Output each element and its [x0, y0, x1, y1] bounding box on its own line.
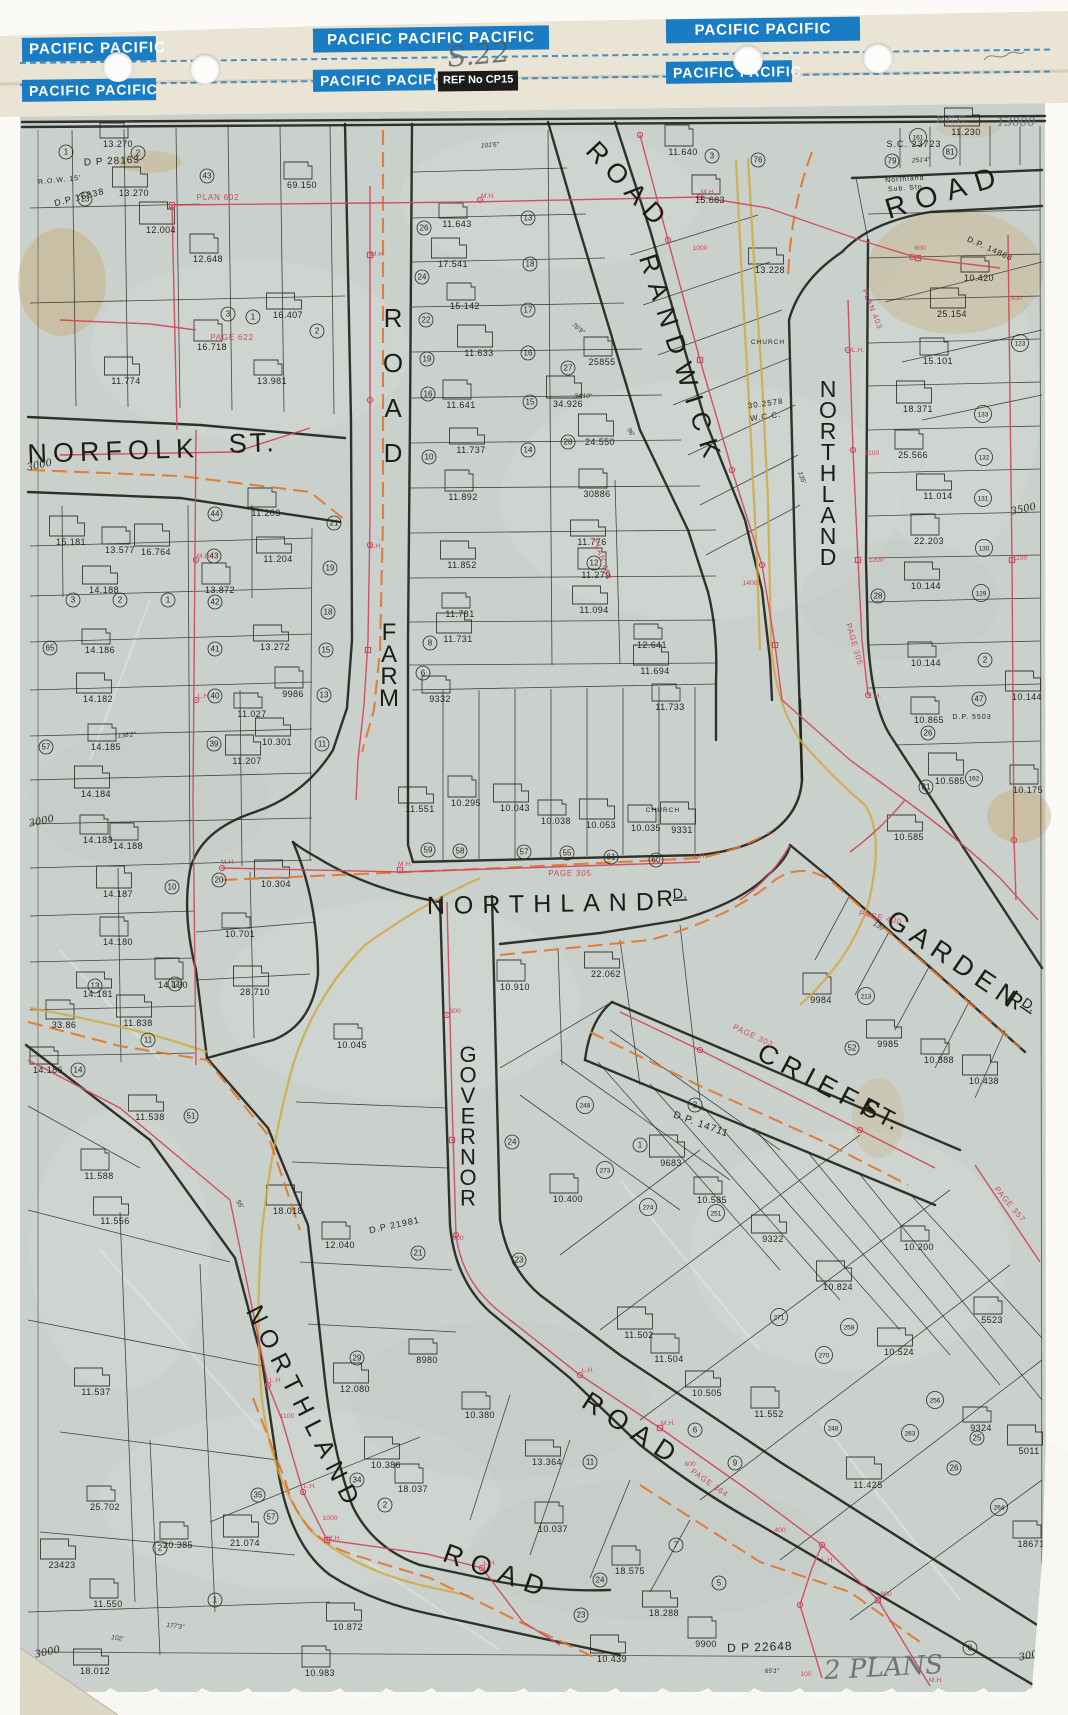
parcel-number: 11 — [144, 1036, 153, 1045]
lot-number: 13.364 — [532, 1457, 562, 1467]
survey-label: 1000 — [322, 1515, 337, 1522]
parcel-number: 1 — [213, 1596, 218, 1605]
lot-number: 24.550 — [585, 437, 615, 447]
lot-number: 25.702 — [90, 1502, 120, 1512]
lot-number: 10.400 — [553, 1194, 583, 1204]
parcel-number: 24 — [596, 1576, 605, 1585]
survey-label: L.H. — [304, 1483, 317, 1490]
lot-number: 9683 — [660, 1158, 682, 1168]
lot-number: 5523 — [981, 1315, 1003, 1325]
street-label: ST. — [228, 427, 277, 459]
parcel-number: 47 — [975, 695, 984, 704]
lot-number: 10.910 — [500, 982, 530, 992]
lot-number: 11.425 — [853, 1480, 882, 1490]
parcel-number: 59 — [424, 846, 433, 855]
parcel-number: 248 — [828, 1426, 839, 1433]
lot-number: 10.872 — [333, 1622, 363, 1632]
lot-number: 10.144 — [1012, 692, 1042, 702]
parcel-number: 60 — [652, 856, 661, 865]
parcel-number: 2 — [118, 596, 123, 605]
parcel-number: 13 — [91, 982, 100, 991]
parcel-number: 40 — [211, 692, 220, 701]
pencil-note: 2 PLANS — [822, 1650, 943, 1686]
dimension-label: 251'4" — [911, 156, 931, 164]
parcel-number: 11 — [318, 740, 327, 749]
punch-hole — [103, 52, 133, 82]
lot-number: 11.633 — [464, 348, 493, 358]
street-label: M — [379, 685, 399, 712]
parcel-number: 1 — [64, 148, 69, 157]
tape-label: PACIFIC PACIFIC — [666, 17, 860, 43]
tape-label: PACIFIC PACIFIC PACIFIC — [313, 25, 549, 52]
parcel-number: 12 — [590, 559, 599, 568]
parcel-number: 251 — [711, 1211, 722, 1218]
lot-number: 14.182 — [83, 694, 113, 704]
survey-label: M.H. — [327, 1535, 341, 1542]
survey-label: M.H. — [661, 1420, 675, 1427]
tape-label: PACIFIC PACIFIC — [313, 68, 435, 92]
survey-label: 400 — [774, 1527, 786, 1534]
parcel-number: 132 — [979, 455, 990, 462]
parcel-number: 23 — [577, 1611, 586, 1620]
parcel-number: 2 — [383, 1501, 388, 1510]
parcel-number: 26 — [950, 1464, 959, 1473]
parcel-number: 6 — [421, 669, 426, 678]
survey-label: M.H. — [701, 189, 715, 196]
parcel-number: 21 — [330, 519, 339, 528]
lot-number: 13.270 — [103, 139, 133, 149]
dimension-label: 65'1" — [765, 1668, 780, 1675]
parcel-number: 57 — [42, 743, 51, 752]
lot-number: 9985 — [877, 1039, 899, 1049]
survey-label: 800 — [452, 1235, 464, 1242]
lot-number: 10.585 — [935, 776, 965, 786]
lot-number: 11.027 — [237, 709, 266, 719]
lot-number: 11.550 — [93, 1599, 122, 1609]
lot-number: 10.701 — [225, 929, 255, 939]
punch-hole — [733, 45, 763, 75]
lot-number: 11.641 — [446, 400, 475, 410]
lot-number: 10.524 — [884, 1347, 914, 1357]
lot-number: 10.585 — [697, 1195, 727, 1205]
lot-number: 28.710 — [240, 987, 270, 997]
lot-number: 11.203 — [251, 508, 280, 518]
survey-label: L.H. — [484, 1560, 497, 1567]
parcel-number: 258 — [844, 1325, 855, 1332]
parcel-number: 44 — [211, 510, 220, 519]
survey-label: M.H. — [481, 193, 495, 200]
street-label: R — [384, 303, 403, 333]
lot-number: 8980 — [416, 1355, 438, 1365]
lot-number: 14.186 — [85, 645, 115, 655]
parcel-number: 133 — [978, 412, 989, 419]
parcel-number: 2 — [983, 656, 988, 665]
parcel-number: 162 — [969, 776, 980, 783]
lot-number: 11.737 — [456, 445, 485, 455]
parcel-number: 1 — [251, 313, 256, 322]
lot-number: 13.270 — [119, 188, 149, 198]
parcel-number: 76 — [754, 156, 763, 165]
survey-label: 1400 — [742, 580, 757, 587]
parcel-number: 273 — [600, 1168, 611, 1175]
parcel-number: 6 — [693, 1426, 698, 1435]
lot-number: 10.386 — [371, 1460, 401, 1470]
parcel-number: 263 — [905, 1431, 916, 1438]
parcel-number: 24 — [508, 1138, 517, 1147]
lot-number: 10.175 — [1013, 785, 1043, 795]
lot-number: 11.852 — [447, 560, 476, 570]
lot-number: 34.926 — [553, 399, 583, 409]
lot-number: 11.781 — [445, 609, 474, 619]
parcel-number: 9 — [733, 1459, 738, 1468]
parcel-number: 29 — [353, 1354, 362, 1363]
pencil-note: E.C.C. — [935, 115, 967, 126]
survey-label: 600 — [449, 1008, 461, 1015]
street-label: D — [384, 438, 403, 468]
lot-number: 25.566 — [898, 450, 928, 460]
survey-label: L.H. — [694, 853, 707, 860]
lot-number: 12.004 — [146, 225, 176, 235]
lot-number: 10.505 — [692, 1388, 722, 1398]
street-label: R — [460, 1186, 476, 1211]
lot-number: 16.718 — [197, 342, 227, 352]
parcel-number: 18 — [324, 608, 333, 617]
lot-number: 10.200 — [904, 1242, 934, 1252]
parcel-number: 274 — [643, 1205, 654, 1212]
survey-label: L.H. — [869, 693, 882, 700]
lot-number: 10.888 — [924, 1055, 954, 1065]
parcel-number: 1 — [166, 596, 171, 605]
survey-label: L.H. — [370, 543, 383, 550]
lot-number: 9332 — [429, 694, 451, 704]
parcel-number: 55 — [563, 849, 572, 858]
survey-label: 1100 — [865, 450, 880, 457]
lot-number: 25.154 — [937, 309, 967, 319]
lot-number: 15.142 — [450, 301, 480, 311]
lot-number: 30886 — [583, 489, 610, 499]
lot-number: 14.188 — [113, 841, 143, 851]
punch-hole — [863, 43, 893, 73]
survey-label: 800 — [684, 1461, 696, 1468]
lot-number: 11.230 — [951, 127, 980, 137]
survey-label: 1000 — [692, 245, 707, 252]
lot-number: 18.575 — [615, 1566, 645, 1576]
survey-label: 600 — [914, 245, 926, 252]
survey-label: 800 — [880, 1591, 892, 1598]
lot-number: 11.551 — [405, 804, 434, 814]
parcel-number: 41 — [211, 645, 220, 654]
survey-label: L.H. — [582, 1367, 595, 1374]
dimension-label: 101'6" — [481, 141, 500, 149]
parcel-number: 11 — [586, 1458, 595, 1467]
street-label: NORTHLAND — [427, 888, 664, 920]
annotation: D P 22648 — [727, 1639, 793, 1655]
parcel-number: 13 — [320, 691, 329, 700]
lot-number: 11.204 — [263, 554, 292, 564]
lot-number: 10.053 — [586, 820, 616, 830]
dimension-label: 34'10" — [574, 393, 593, 400]
parcel-number: 42 — [211, 598, 220, 607]
tape-label: PACIFIC PACIFIC — [22, 78, 156, 102]
survey-label: L.H. — [852, 347, 865, 354]
lot-number: 10.585 — [894, 832, 924, 842]
parcel-number: 2 — [315, 327, 320, 336]
lot-number: 11.892 — [448, 492, 477, 502]
lot-number: 11.774 — [111, 376, 140, 386]
lot-number: 11.504 — [654, 1354, 683, 1364]
parcel-number: 3 — [71, 596, 76, 605]
lot-number: 10.038 — [541, 816, 571, 826]
lot-number: 9322 — [762, 1234, 784, 1244]
parcel-number: 16 — [424, 390, 433, 399]
parcel-number: 270 — [819, 1353, 830, 1360]
lot-number: 9986 — [282, 689, 304, 699]
annotation: S.C. 23723 — [886, 139, 941, 149]
parcel-number: 17 — [524, 306, 533, 315]
lot-number: 18.012 — [80, 1666, 110, 1676]
parcel-number: 13 — [524, 214, 533, 223]
lot-number: 10.035 — [631, 823, 661, 833]
lot-number: 18.288 — [649, 1608, 679, 1618]
lot-number: 15.181 — [56, 537, 86, 547]
lot-number: 11.694 — [640, 666, 669, 676]
lot-number: 13.872 — [205, 585, 235, 595]
parcel-number: 28 — [564, 438, 573, 447]
lot-number: 17.541 — [438, 259, 468, 269]
lot-number: 9324 — [970, 1423, 992, 1433]
lot-number: 11.643 — [442, 219, 471, 229]
parcel-number: 16 — [524, 349, 533, 358]
lot-number: 22.062 — [591, 969, 621, 979]
parcel-number: 248 — [580, 1103, 591, 1110]
parcel-number: 131 — [978, 496, 989, 503]
survey-annotation: PLAN 602 — [197, 193, 240, 202]
parcel-number: 25 — [973, 1434, 982, 1443]
parcel-number: 130 — [979, 546, 990, 553]
lot-number: 10.301 — [262, 737, 292, 747]
lot-number: 10.824 — [823, 1282, 853, 1292]
parcel-number: 27 — [564, 364, 573, 373]
parcel-number: 14 — [74, 1066, 83, 1075]
tape-label: PACIFIC PACIFIC — [666, 60, 792, 84]
lot-number: 10.144 — [911, 658, 941, 668]
lot-number: 18.371 — [903, 404, 933, 414]
parcel-number: 61 — [607, 853, 616, 862]
lot-number: 10.295 — [451, 798, 481, 808]
parcel-number: 51 — [187, 1112, 196, 1121]
parcel-number: 79 — [888, 157, 897, 166]
lot-number: 12.648 — [193, 254, 223, 264]
survey-annotation: PAGE 305 — [548, 869, 592, 878]
lot-number: 22.203 — [914, 536, 944, 546]
lot-number: 11.014 — [923, 491, 952, 501]
survey-label: M.H. — [371, 251, 385, 258]
lot-number: 11.094 — [579, 605, 608, 615]
parcel-number: 213 — [861, 994, 872, 1001]
lot-number: 13.981 — [257, 376, 287, 386]
lot-number: 18671 — [1017, 1539, 1044, 1549]
parcel-number: 28 — [874, 592, 883, 601]
lot-number: 33.86 — [52, 1020, 77, 1030]
survey-label: 1200 — [868, 557, 883, 564]
lot-number: 10.045 — [337, 1040, 367, 1050]
street-label: NORFOLK — [27, 433, 200, 469]
lot-number: 10.144 — [911, 581, 941, 591]
parcel-number: 123 — [1015, 341, 1026, 348]
parcel-number: 3 — [226, 310, 231, 319]
parcel-number: 35 — [254, 1491, 263, 1500]
lot-number: 9984 — [810, 995, 832, 1005]
lot-number: 18.018 — [273, 1206, 303, 1216]
survey-label: L.H. — [822, 1557, 835, 1564]
lot-number: 13.577 — [105, 545, 135, 555]
lot-number: 11.556 — [100, 1216, 129, 1226]
parcel-number: 34 — [353, 1476, 362, 1485]
lot-number: 9331 — [671, 825, 693, 835]
lot-number: 11.733 — [655, 702, 684, 712]
parcel-number: 39 — [210, 740, 219, 749]
survey-label: M.H. — [221, 859, 235, 866]
parcel-number: 15 — [322, 646, 331, 655]
annotation: D.P. 5503 — [952, 714, 991, 721]
lot-number: 11.538 — [135, 1112, 164, 1122]
lot-number: 13.228 — [755, 265, 785, 275]
parcel-number: 26 — [420, 224, 429, 233]
lot-number: 15.683 — [695, 195, 725, 205]
lot-number: 10.438 — [969, 1076, 999, 1086]
parcel-number: 2 — [158, 1544, 163, 1553]
parcel-number: 52 — [848, 1044, 857, 1053]
survey-label: 1100 — [280, 1413, 295, 1420]
lot-number: 5011 — [1019, 1446, 1040, 1456]
survey-label: M.H. — [398, 861, 412, 868]
parcel-number: 20 — [215, 876, 224, 885]
lot-number: 23423 — [48, 1560, 75, 1570]
lot-number: 14.185 — [91, 742, 121, 752]
parcel-number: 19 — [326, 564, 335, 573]
lot-number: 10.983 — [305, 1668, 335, 1678]
annotation: CHURCH — [751, 339, 785, 346]
annotation: CHURCH — [646, 807, 680, 814]
lot-number: 14.187 — [103, 889, 133, 899]
parcel-number: 7 — [674, 1541, 679, 1550]
survey-label: L.H. — [198, 693, 211, 700]
parcel-number: 23 — [515, 1256, 524, 1265]
lot-number: 25855 — [588, 357, 615, 367]
lot-number: 11.502 — [624, 1330, 653, 1340]
street-label: O — [383, 348, 403, 378]
lot-number: 10.380 — [465, 1410, 495, 1420]
lot-number: 10.865 — [914, 715, 944, 725]
parcel-number: 65 — [46, 644, 55, 653]
parcel-number: 5 — [717, 1579, 722, 1588]
lot-number: 14.188 — [89, 585, 119, 595]
survey-annotation: PAGE 622 — [210, 333, 254, 342]
lot-number: 11.552 — [754, 1409, 783, 1419]
lot-number: 13.272 — [260, 642, 290, 652]
parcel-number: 1 — [638, 1141, 643, 1150]
lot-number: 15.101 — [923, 356, 953, 366]
parcel-number: 271 — [774, 1315, 785, 1322]
lot-number: 11.207 — [232, 756, 261, 766]
parcel-number: 19 — [423, 355, 432, 364]
parcel-number: 57 — [520, 848, 529, 857]
lot-number: 11.838 — [123, 1018, 152, 1028]
tape-label: PACIFIC PACIFIC — [22, 36, 156, 62]
lot-number: 11.640 — [668, 147, 697, 157]
lot-number: 11.537 — [81, 1387, 110, 1397]
parcel-number: 8 — [968, 1644, 973, 1653]
parcel-number: 24 — [418, 273, 427, 282]
pencil-note: 13000 — [997, 115, 1036, 129]
lot-number: 18.037 — [398, 1484, 428, 1494]
lot-number: 11.731 — [443, 634, 472, 644]
parcel-number: 81 — [946, 148, 955, 157]
lot-number: 10.420 — [964, 273, 994, 283]
lot-number: 16.764 — [141, 547, 171, 557]
lot-number: 21.074 — [230, 1538, 260, 1548]
parcel-number: 10 — [168, 883, 177, 892]
lot-number: 10.304 — [261, 879, 291, 889]
lot-number: 69.150 — [287, 180, 317, 190]
parcel-number: 8 — [428, 639, 433, 648]
lot-number: 14.184 — [81, 789, 111, 799]
parcel-number: 58 — [456, 847, 465, 856]
lot-number: 12.080 — [340, 1384, 370, 1394]
lot-number: 20.385 — [163, 1540, 193, 1550]
parcel-number: 3 — [710, 152, 715, 161]
street-label: D — [820, 544, 837, 570]
parcel-number: 43 — [203, 172, 212, 181]
map-sheet: NORFOLKST.ROADFARMROADRANDWICKNORTHLANDR… — [0, 0, 1068, 1715]
parcel-number: 10 — [425, 453, 434, 462]
parcel-number: 15 — [526, 398, 535, 407]
pencil-squiggle-icon — [982, 46, 1026, 66]
map-canvas: NORFOLKST.ROADFARMROADRANDWICKNORTHLANDR… — [0, 0, 1068, 1715]
parcel-number: 81 — [922, 783, 931, 792]
lot-number: 11.588 — [84, 1171, 113, 1181]
survey-label: 1100 — [1013, 555, 1028, 562]
survey-label: M.H. — [197, 553, 211, 560]
lot-number: 12.641 — [637, 640, 667, 650]
parcel-number: 18 — [526, 260, 535, 269]
parcel-number: 256 — [930, 1398, 941, 1405]
parcel-number: 14 — [524, 446, 533, 455]
parcel-number: 57 — [267, 1513, 276, 1522]
lot-number: 16.407 — [273, 310, 303, 320]
parcel-number: 129 — [976, 591, 987, 598]
parcel-number: 264 — [994, 1505, 1005, 1512]
punch-hole — [190, 54, 220, 84]
parcel-number: 2 — [693, 1101, 698, 1110]
lot-number: 14.180 — [103, 937, 133, 947]
survey-label: 100 — [800, 1671, 812, 1678]
survey-label: 300 — [1010, 295, 1022, 302]
lot-number: 14.186 — [33, 1065, 63, 1075]
lot-number: 10.037 — [538, 1524, 568, 1534]
lot-number: 10.043 — [500, 803, 530, 813]
sheet-code: S.22 — [446, 35, 511, 73]
lot-number: 10.439 — [597, 1654, 627, 1664]
parcel-number: 22 — [422, 316, 431, 325]
parcel-number: 21 — [414, 1249, 423, 1258]
lot-number: 12.040 — [325, 1240, 355, 1250]
street-label: A — [384, 393, 402, 423]
parcel-number: 26 — [924, 729, 933, 738]
lot-number: 14.183 — [83, 835, 113, 845]
parcel-number: 12 — [171, 980, 180, 989]
lot-number: 9900 — [695, 1639, 717, 1649]
